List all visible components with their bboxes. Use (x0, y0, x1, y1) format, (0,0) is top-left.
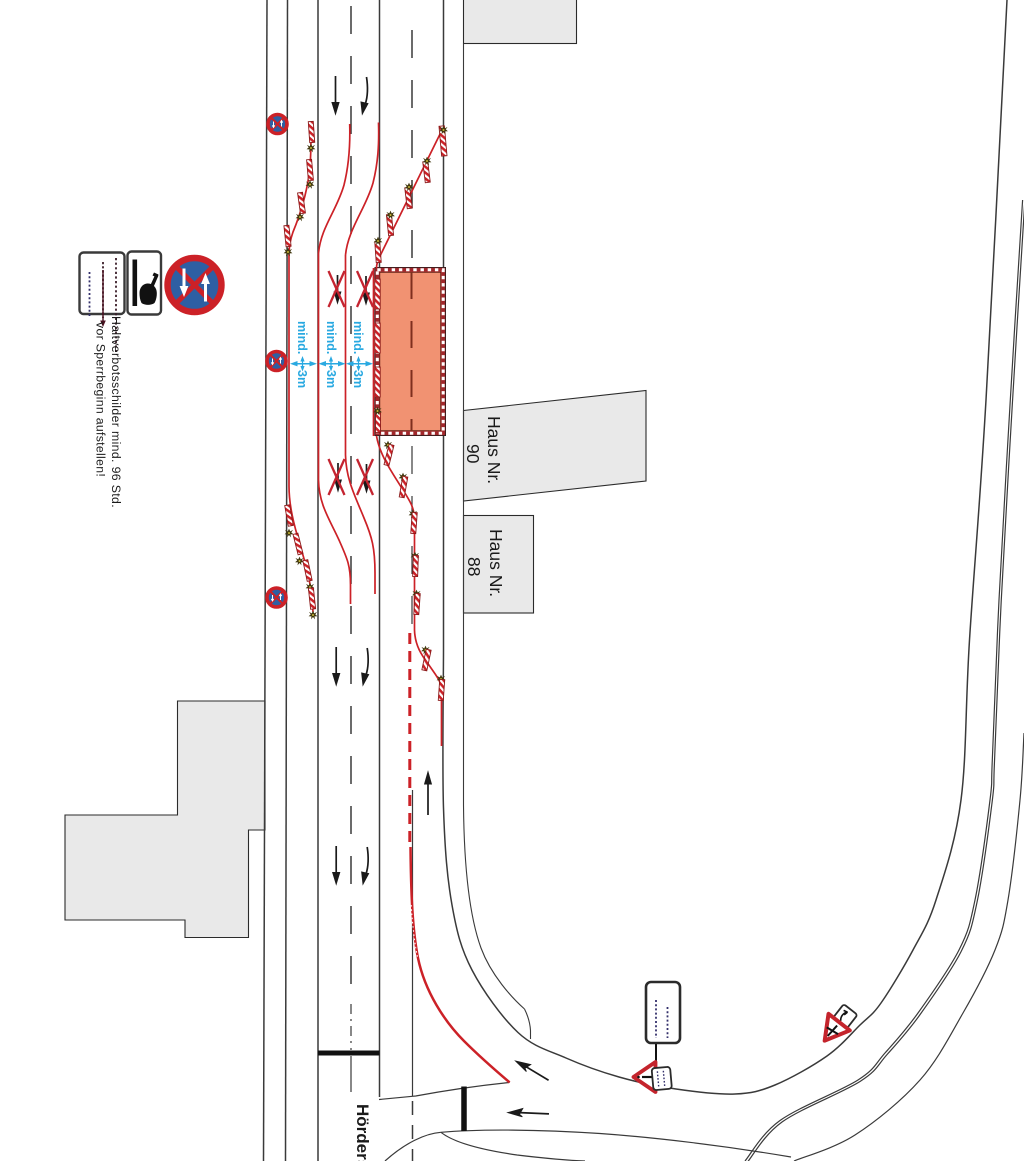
svg-text:mind.: mind. (295, 321, 309, 354)
svg-text:mind.: mind. (324, 321, 338, 354)
svg-text:90: 90 (463, 444, 483, 464)
svg-text:3m: 3m (295, 370, 309, 388)
svg-text:3m: 3m (324, 370, 338, 388)
svg-text:Haus Nr.: Haus Nr. (484, 416, 504, 484)
svg-text:mind.: mind. (351, 321, 365, 354)
svg-text:3m: 3m (351, 370, 365, 388)
svg-text:vor Sperrbeginn aufstellen!: vor Sperrbeginn aufstellen! (94, 322, 108, 477)
svg-text:Haus Nr.: Haus Nr. (486, 529, 506, 597)
svg-text:88: 88 (464, 557, 484, 576)
svg-text:Hörderstraße: Hörderstraße (353, 1104, 372, 1161)
svg-text:Haltverbotsschilder mind. 96 S: Haltverbotsschilder mind. 96 Std. (109, 316, 123, 508)
